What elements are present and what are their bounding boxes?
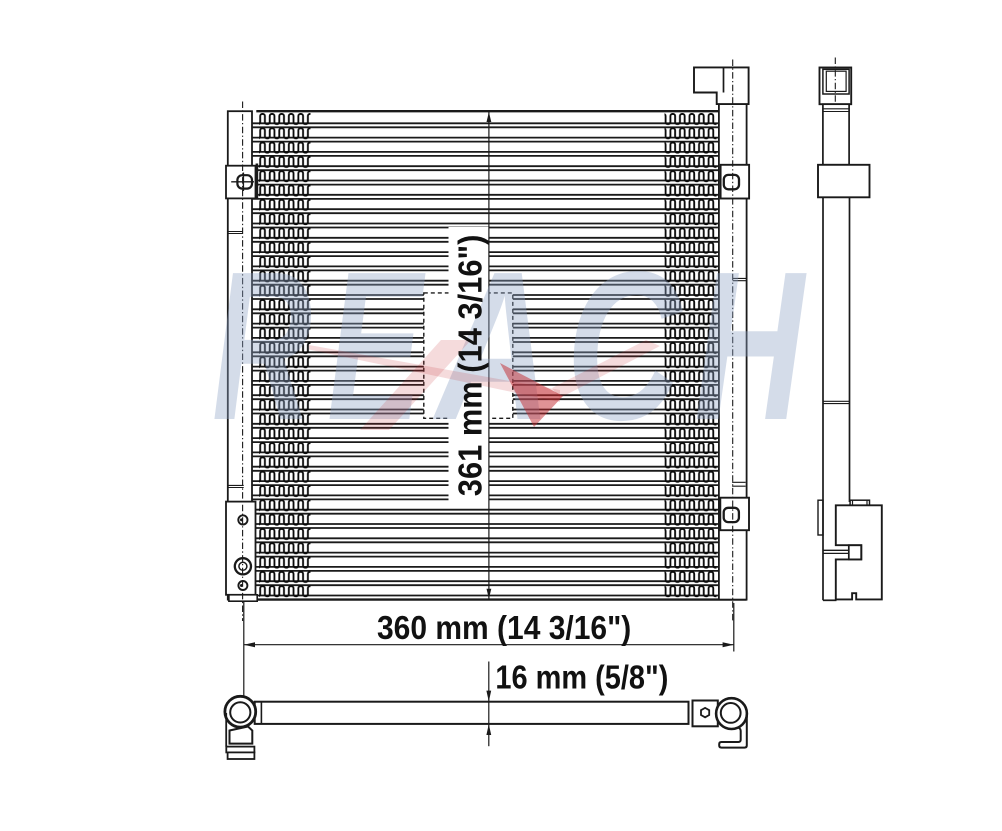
svg-text:360 mm (14 3/16"): 360 mm (14 3/16"): [377, 609, 631, 646]
svg-text:361 mm (14 3/16"): 361 mm (14 3/16"): [452, 235, 489, 497]
svg-text:C: C: [566, 227, 683, 464]
svg-text:R: R: [212, 227, 312, 464]
svg-text:16 mm (5/8"): 16 mm (5/8"): [495, 658, 668, 695]
svg-text:H: H: [694, 227, 807, 464]
